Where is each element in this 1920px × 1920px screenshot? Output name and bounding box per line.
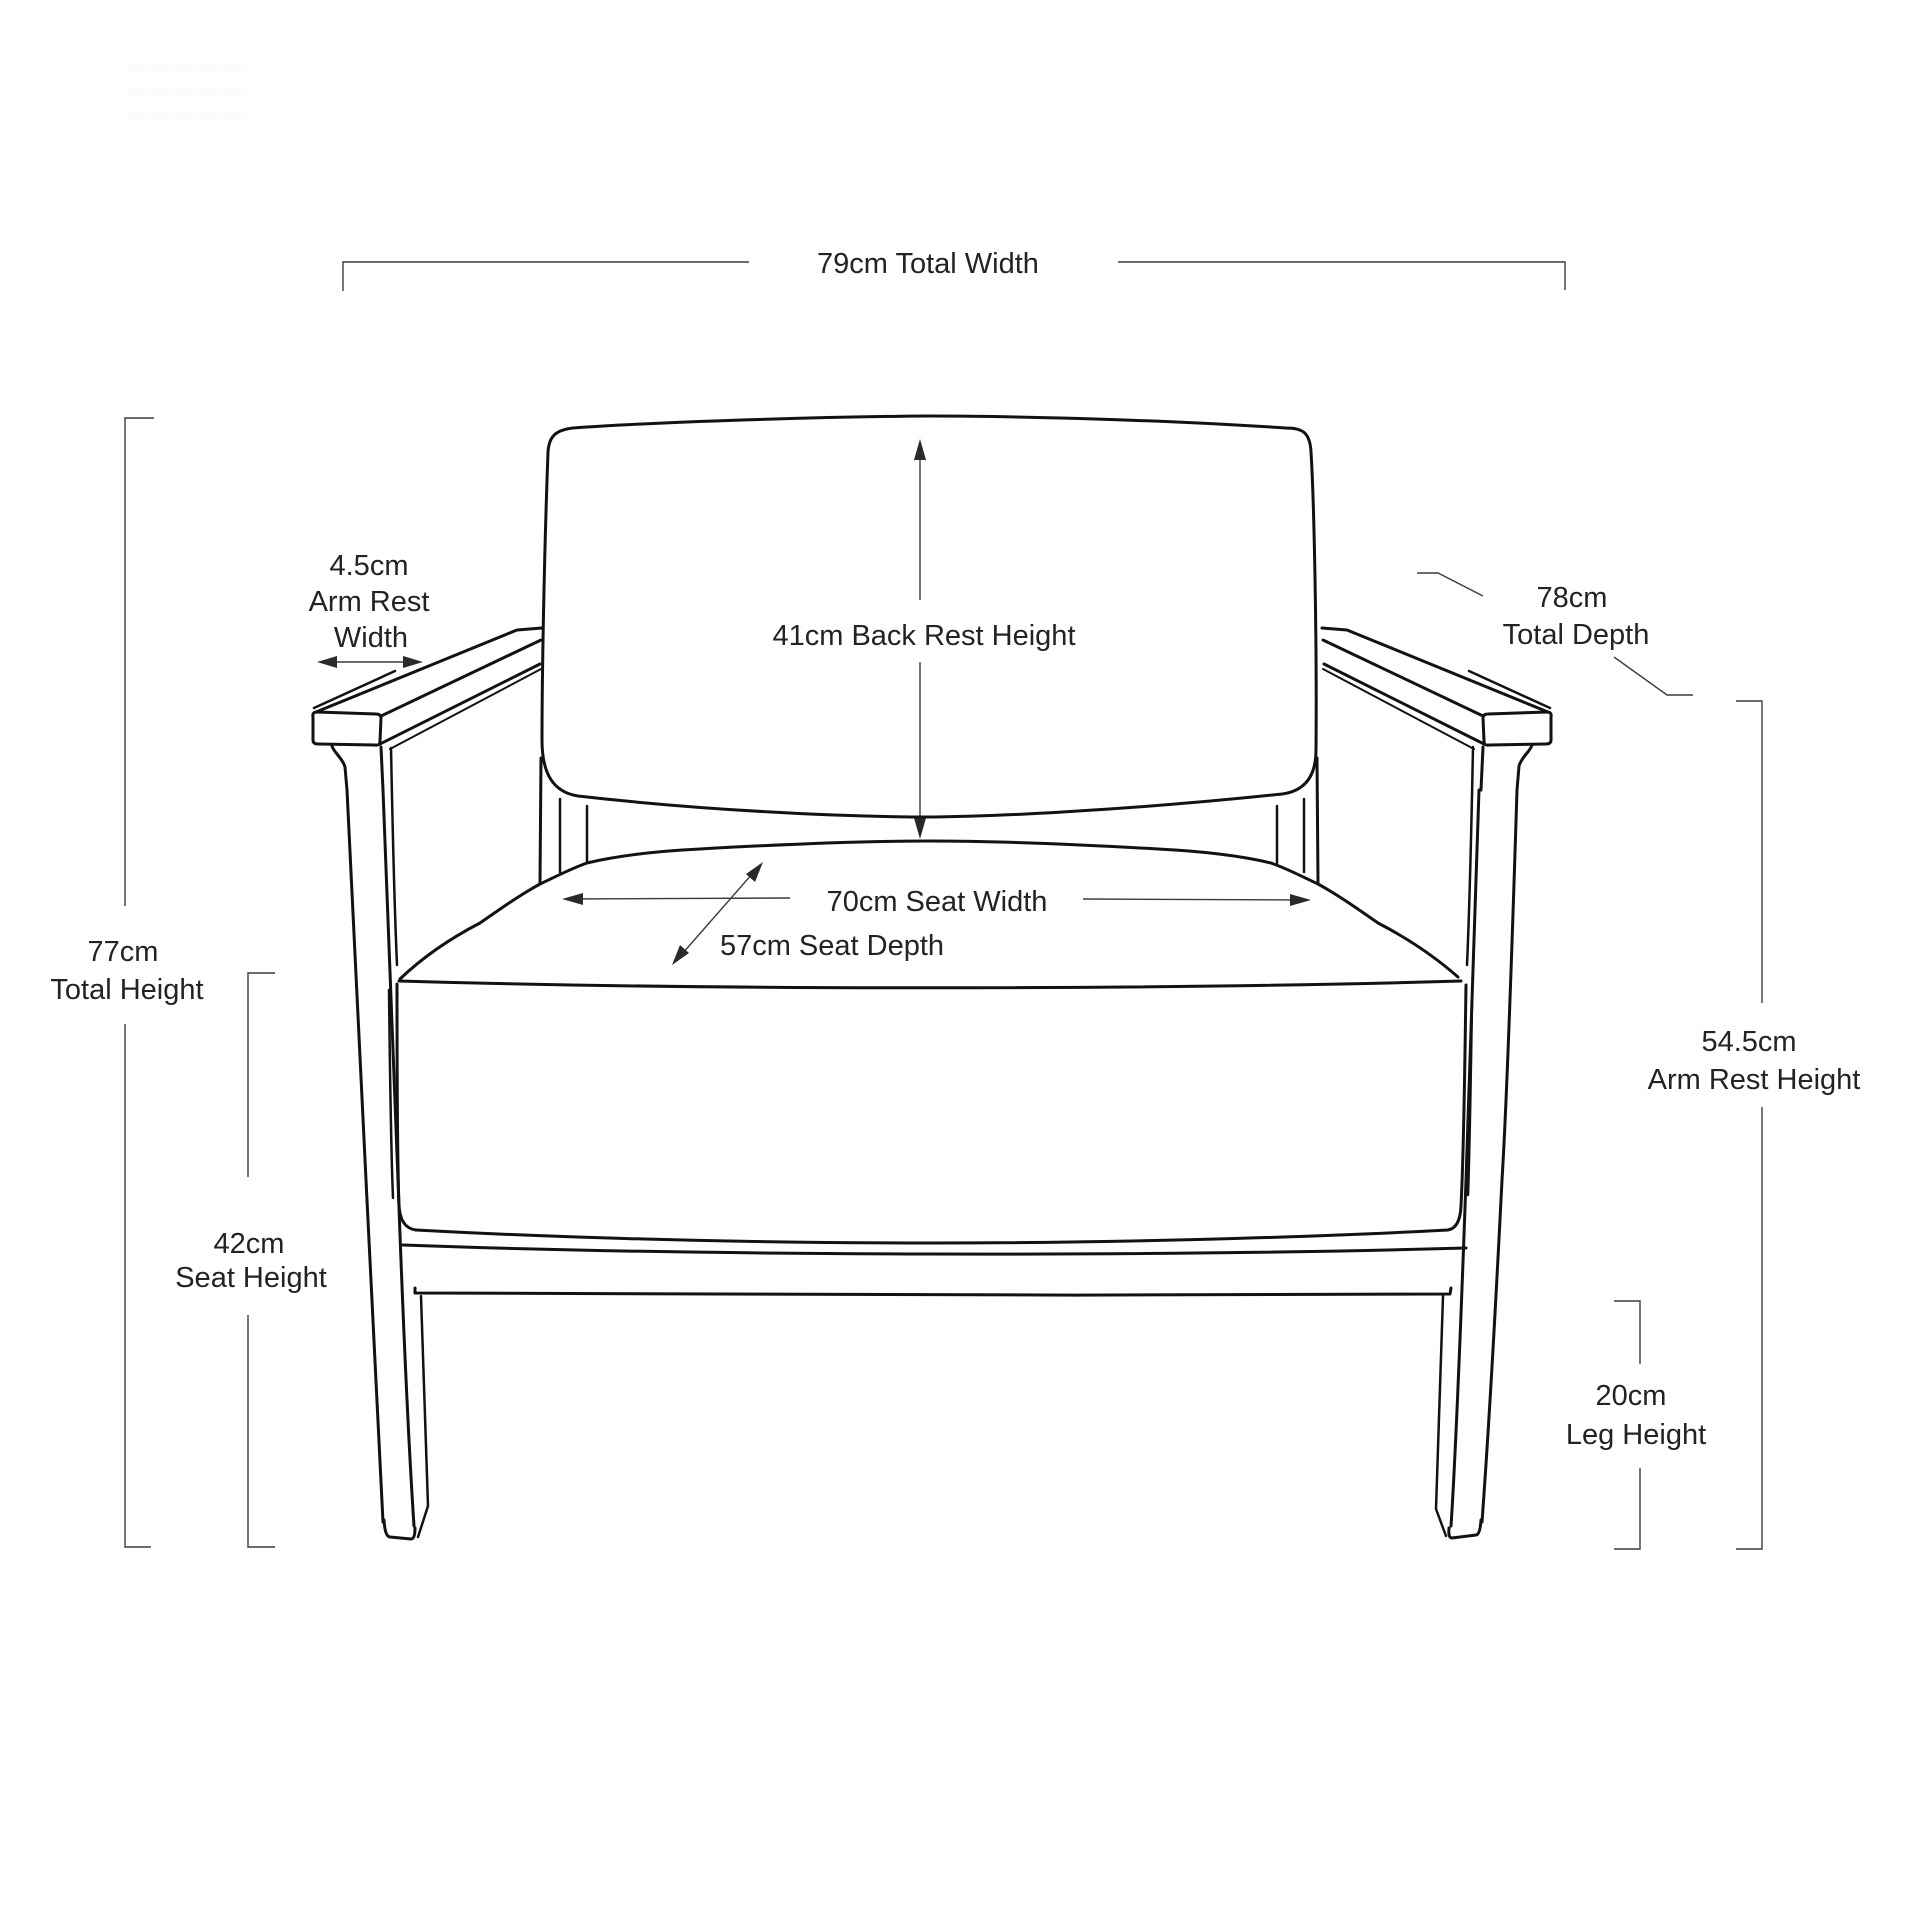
svg-text:Width: Width	[334, 622, 408, 654]
svg-text:Arm Rest Height: Arm Rest Height	[1648, 1064, 1861, 1096]
svg-text:Leg Height: Leg Height	[1566, 1419, 1706, 1451]
svg-text:20cm: 20cm	[1596, 1380, 1667, 1412]
svg-text:Total Height: Total Height	[50, 974, 203, 1006]
svg-text:77cm: 77cm	[88, 936, 159, 968]
svg-text:Seat Height: Seat Height	[175, 1262, 327, 1294]
svg-text:4.5cm: 4.5cm	[330, 550, 409, 582]
svg-text:Arm Rest: Arm Rest	[309, 586, 430, 618]
svg-text:57cm Seat Depth: 57cm Seat Depth	[720, 930, 944, 962]
svg-text:79cm Total Width: 79cm Total Width	[817, 248, 1039, 280]
svg-text:78cm: 78cm	[1537, 582, 1608, 614]
svg-text:Total Depth: Total Depth	[1503, 619, 1650, 651]
svg-text:41cm Back Rest Height: 41cm Back Rest Height	[772, 620, 1075, 652]
svg-text:42cm: 42cm	[214, 1228, 285, 1260]
svg-text:54.5cm: 54.5cm	[1701, 1026, 1796, 1058]
svg-text:70cm Seat Width: 70cm Seat Width	[827, 886, 1048, 918]
